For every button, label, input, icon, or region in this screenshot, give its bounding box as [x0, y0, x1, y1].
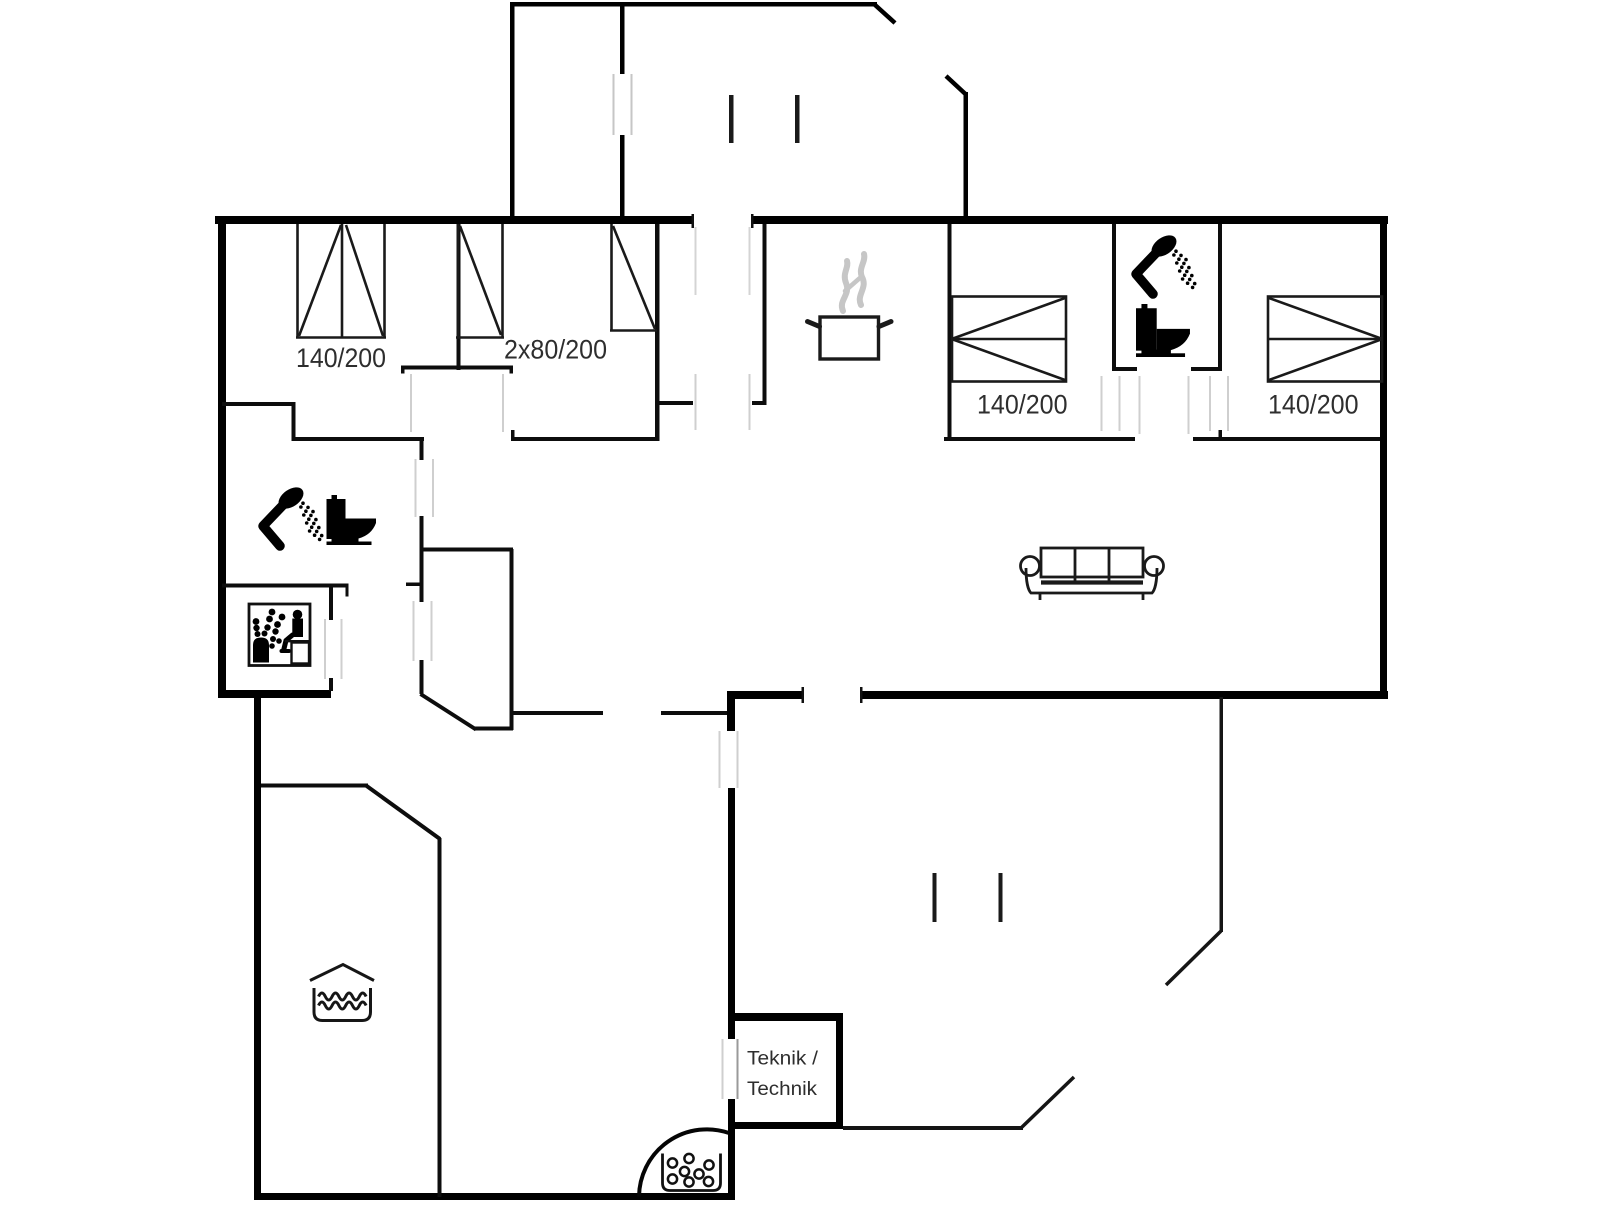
svg-text:140/200: 140/200 — [296, 343, 386, 373]
svg-text:140/200: 140/200 — [977, 390, 1068, 420]
svg-text:2x80/200: 2x80/200 — [504, 335, 607, 365]
svg-text:Technik: Technik — [747, 1078, 817, 1100]
svg-text:140/200: 140/200 — [1268, 390, 1359, 420]
svg-text:Teknik /: Teknik / — [747, 1048, 819, 1070]
